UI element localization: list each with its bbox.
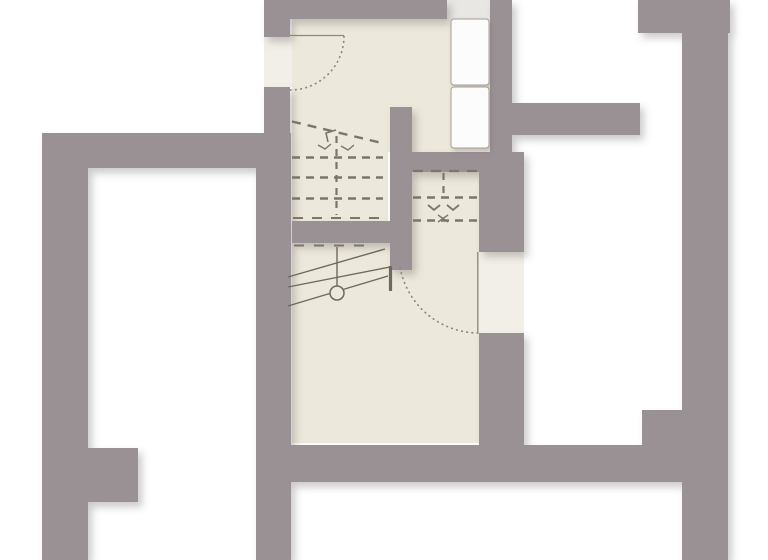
floor-right-stair-room [407,172,479,243]
floor-lower-room [292,243,479,443]
floor-plan-svg [0,0,768,560]
door-opening-top-left [264,37,292,87]
wall-stair-stub [390,107,412,270]
wall-east-room-upper [479,152,524,252]
wall-left-upper [264,87,290,133]
wall-east-room-lower [479,333,524,445]
wall-north-east [510,103,640,135]
wall-east-outer [682,0,728,560]
wall-east-step [642,410,684,447]
floor-stair-landing [292,152,388,221]
wall-west-stub [88,448,138,502]
wall-inner-north [490,0,512,172]
wall-south [291,445,684,482]
wall-top [264,0,447,19]
cabinet-top [451,19,489,85]
wall-left-top-stub [264,0,290,37]
window-strip [447,0,490,19]
layer-fixtures [451,19,489,148]
wall-west-outer [42,133,88,560]
wall-mid-band [292,221,407,243]
floor-plan [0,0,768,560]
wall-left-main [256,133,291,560]
cabinet-bottom [451,87,489,148]
door-opening-east [479,252,524,333]
stair-lower-newel [330,286,344,300]
